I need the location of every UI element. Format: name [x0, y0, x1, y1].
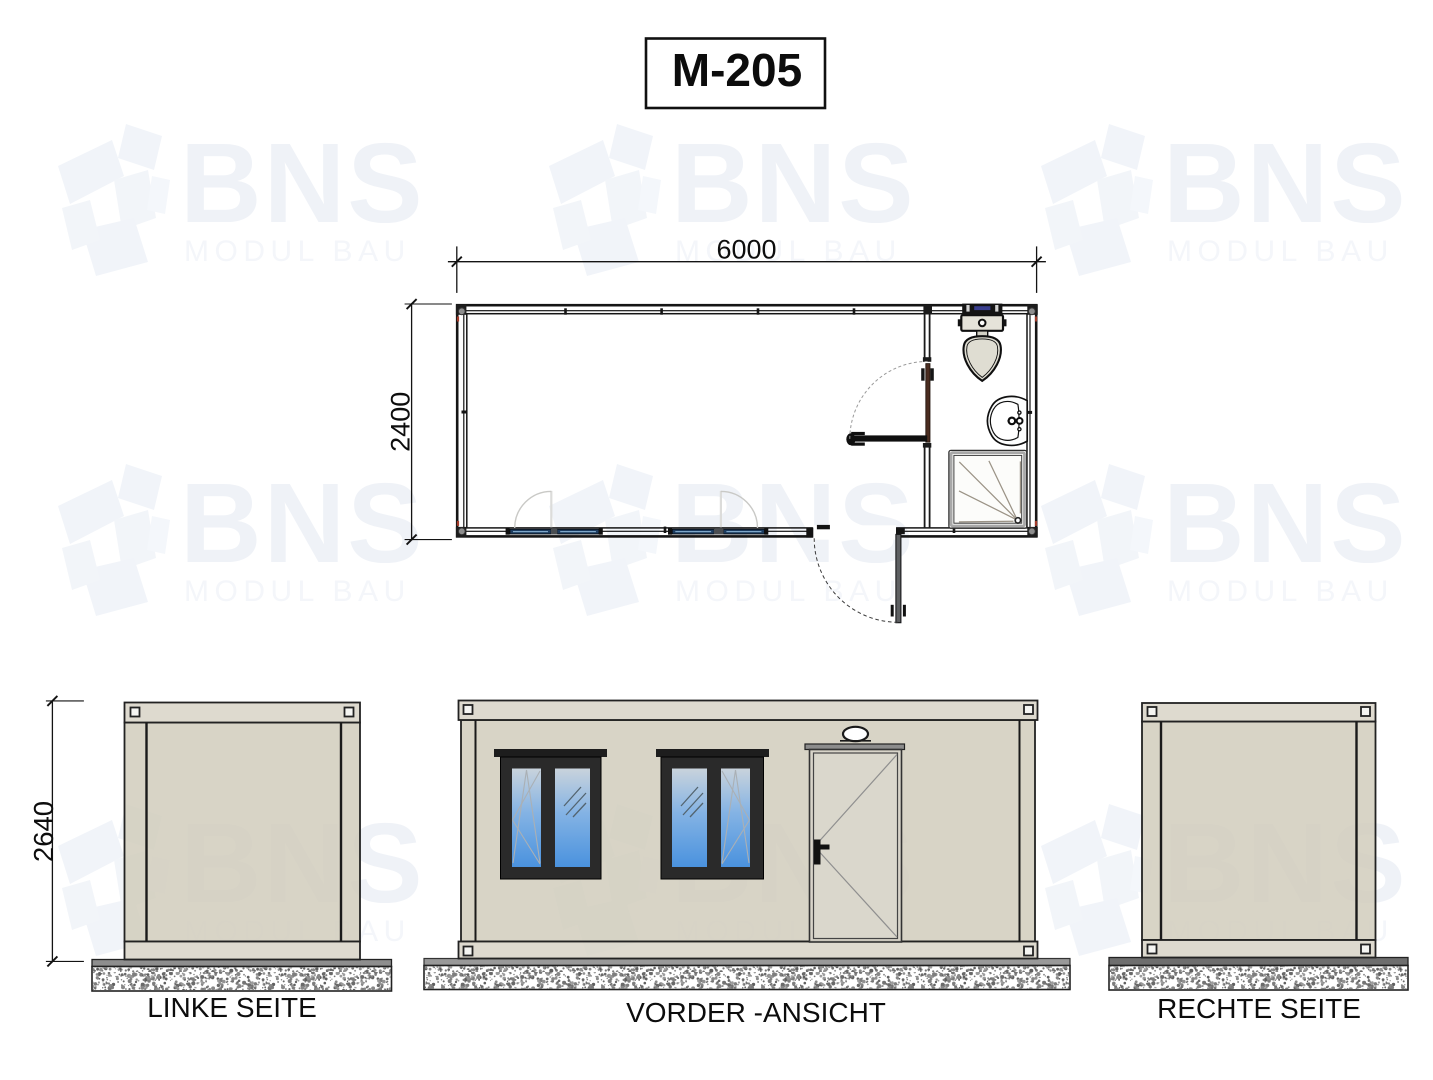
svg-text:6000: 6000: [716, 235, 776, 265]
svg-text:M-205: M-205: [672, 44, 802, 96]
svg-text:VORDER -ANSICHT: VORDER -ANSICHT: [626, 997, 886, 1028]
svg-text:RECHTE SEITE: RECHTE SEITE: [1157, 993, 1361, 1024]
svg-text:2640: 2640: [28, 801, 59, 862]
svg-text:2400: 2400: [386, 392, 416, 452]
svg-text:LINKE SEITE: LINKE SEITE: [147, 992, 317, 1023]
